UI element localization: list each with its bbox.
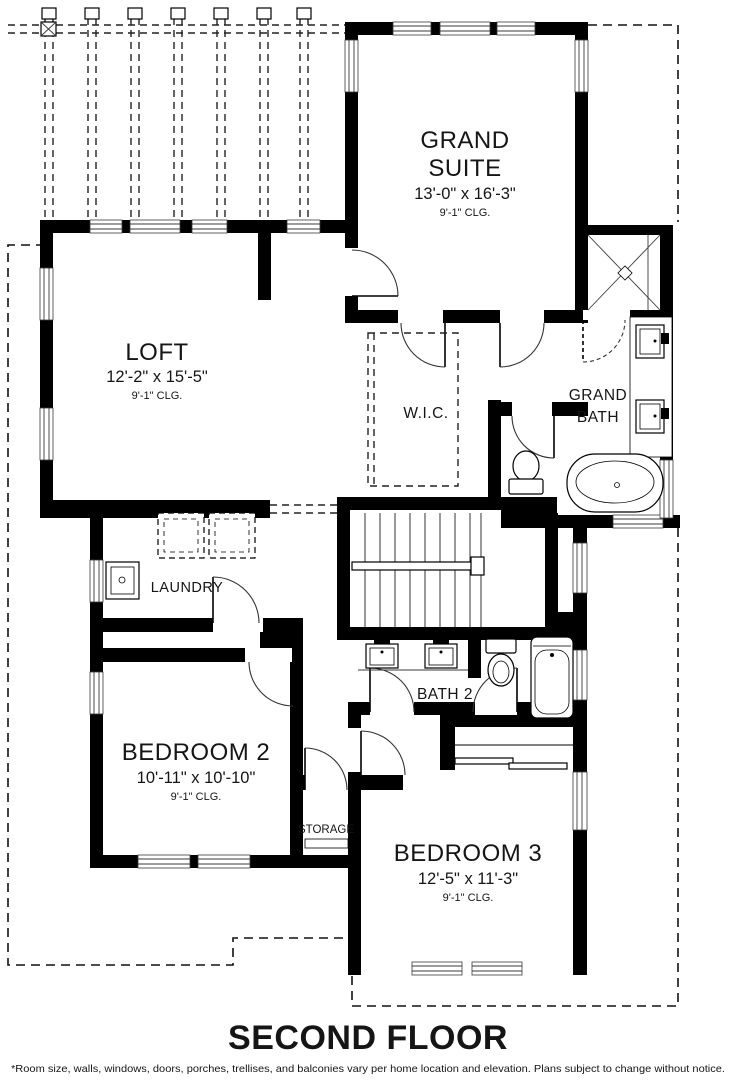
loft-label: LOFT	[125, 339, 188, 366]
grand-suite-label: GRAND	[420, 127, 509, 154]
suite-vestibule-door	[500, 323, 544, 367]
grand-bath-door	[512, 416, 554, 458]
laundry-sink-icon	[106, 562, 139, 599]
laundry-label: LAUNDRY	[151, 580, 224, 596]
bedroom2-dims: 10'-11" x 10'-10"	[137, 769, 256, 787]
grand-bath-vanity	[630, 317, 672, 457]
page-title: SECOND FLOOR	[228, 1019, 508, 1057]
grand-suite-clg: 9'-1" CLG.	[440, 207, 491, 219]
bedroom3-closet	[455, 745, 573, 769]
bedroom3-clg: 9'-1" CLG.	[443, 892, 494, 904]
bath2-toilet-icon	[486, 639, 516, 686]
floor-plan-page: GRAND SUITE 13'-0" x 16'-3" 9'-1" CLG. L…	[0, 0, 736, 1080]
bedroom3-door	[361, 731, 405, 775]
loft-clg: 9'-1" CLG.	[132, 390, 183, 402]
bedroom2-door	[249, 662, 293, 706]
shower-icon	[588, 235, 660, 310]
bath2-vanity	[358, 637, 468, 670]
grand-suite-dims: 13'-0" x 16'-3"	[414, 185, 516, 203]
staircase	[352, 513, 484, 627]
wic-label: W.I.C.	[403, 405, 448, 422]
grand-bath-label: GRAND	[569, 387, 627, 404]
disclaimer-text: *Room size, walls, windows, doors, porch…	[11, 1063, 725, 1075]
bedroom2-clg: 9'-1" CLG.	[171, 791, 222, 803]
stair-newel	[471, 557, 484, 575]
loft-dims: 12'-2" x 15'-5"	[106, 368, 208, 386]
washer-icon	[158, 513, 204, 558]
bedroom3-dims: 12'-5" x 11'-3"	[418, 870, 518, 888]
storage-label: STORAGE	[298, 824, 354, 836]
shower-door	[583, 320, 625, 362]
grand-bath-toilet-icon	[509, 451, 543, 494]
dryer-icon	[209, 513, 255, 558]
bath2-door	[370, 668, 414, 712]
storage-shelf	[305, 839, 348, 848]
floor-plan-drawing: GRAND SUITE 13'-0" x 16'-3" 9'-1" CLG. L…	[0, 0, 736, 1080]
grand-bath-tub-icon	[567, 454, 663, 512]
bath2-label: BATH 2	[417, 686, 473, 703]
bath2-tub-icon	[531, 637, 573, 718]
trellis-post-icon	[41, 22, 56, 36]
wic-door	[401, 323, 445, 367]
grand-suite-label-2: SUITE	[428, 155, 501, 182]
bedroom2-label: BEDROOM 2	[122, 739, 271, 766]
grand-suite-door	[352, 250, 398, 296]
trellis-beams	[8, 8, 345, 220]
bedroom3-label: BEDROOM 3	[394, 840, 543, 867]
stair-handrail	[352, 562, 482, 570]
grand-bath-label-2: BATH	[577, 409, 619, 426]
